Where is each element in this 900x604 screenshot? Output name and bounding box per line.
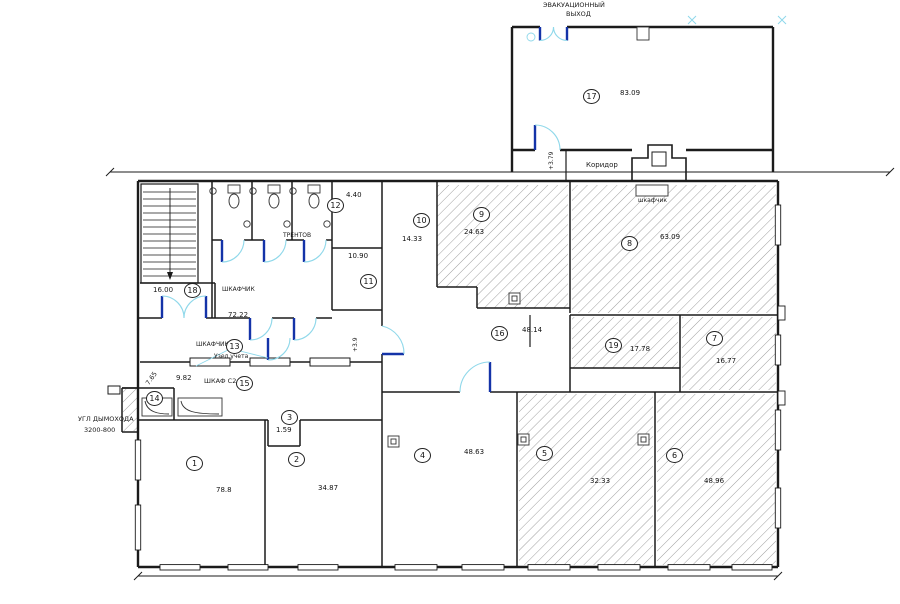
room-number-9: 9 <box>473 207 490 222</box>
room-area-17: 83.09 <box>620 89 640 97</box>
room-area-2: 34.87 <box>318 484 338 492</box>
room-number-5: 5 <box>536 446 553 461</box>
room-number-13: 13 <box>226 339 243 354</box>
room-number-19: 19 <box>605 338 622 353</box>
room-area-4: 48.63 <box>464 448 484 456</box>
room-number-10: 10 <box>413 213 430 228</box>
trainer-label: ТРЕНТОВ <box>283 232 311 239</box>
room-area-19: 17.78 <box>630 345 650 353</box>
room-number-7: 7 <box>706 331 723 346</box>
hall-area: 72.22 <box>228 311 248 319</box>
room-area-7: 16.77 <box>716 357 736 365</box>
corner-note-line1: УГЛ ДЫМОХОДА <box>78 415 134 423</box>
room-area-16: 48.14 <box>522 326 542 334</box>
closet-label-left: ШКАФЧИК <box>222 286 255 293</box>
closet-label-mid: ШКАФЧИК <box>196 341 229 348</box>
room-number-14: 14 <box>146 391 163 406</box>
room-number-4: 4 <box>414 448 431 463</box>
room-number-15: 15 <box>236 376 253 391</box>
room-number-17: 17 <box>583 89 600 104</box>
wardrobe-area: 9.82 <box>176 374 192 382</box>
room-number-11: 11 <box>360 274 377 289</box>
closet-label-top: шкафчик <box>638 197 667 204</box>
plan-drawing <box>0 0 900 604</box>
elevation-mark-upper: +3.79 <box>548 152 555 170</box>
floor-plan: ЭВАКУАЦИОННЫЙ ВЫХОД Коридор +3.79 +3.9 ш… <box>0 0 900 604</box>
wardrobe-label: ШКАФ С2 <box>204 377 236 385</box>
room-area-11: 10.90 <box>348 252 368 260</box>
meter-unit-label: Узел учета <box>214 353 248 360</box>
room-area-3: 1.59 <box>276 426 292 434</box>
room-area-6: 48.96 <box>704 477 724 485</box>
room-number-3: 3 <box>281 410 298 425</box>
stair-room-area: 16.00 <box>153 286 173 294</box>
elevation-mark-inner: +3.9 <box>352 337 359 352</box>
corridor-label: Коридор <box>586 161 618 169</box>
evacuation-exit-label-line1: ЭВАКУАЦИОННЫЙ <box>543 1 605 9</box>
room-number-12: 12 <box>327 198 344 213</box>
room-area-5: 32.33 <box>590 477 610 485</box>
toilet-fixtures <box>210 185 330 227</box>
evacuation-exit-label-line2: ВЫХОД <box>566 10 591 18</box>
room-number-18: 18 <box>184 283 201 298</box>
staircase <box>141 184 198 283</box>
room-area-9: 24.63 <box>464 228 484 236</box>
room-area-8: 63.09 <box>660 233 680 241</box>
room-number-6: 6 <box>666 448 683 463</box>
room-number-16: 16 <box>491 326 508 341</box>
room-area-1: 78.8 <box>216 486 232 494</box>
room-area-12: 4.40 <box>346 191 362 199</box>
room-number-8: 8 <box>621 236 638 251</box>
room-number-1: 1 <box>186 456 203 471</box>
corner-note-line2: 3200-800 <box>84 426 115 434</box>
room-area-10: 14.33 <box>402 235 422 243</box>
room-number-2: 2 <box>288 452 305 467</box>
